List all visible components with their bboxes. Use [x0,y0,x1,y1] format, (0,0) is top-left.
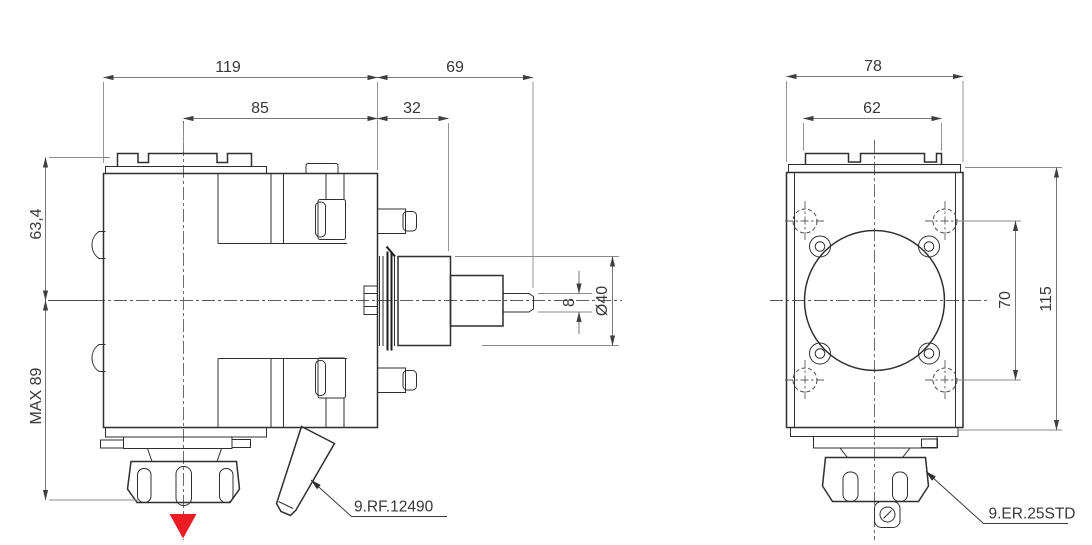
drawing-svg: 119 69 85 32 63,4 MAX 89 8 Ø40 9.RF.1249… [0,0,1092,545]
dim-text-max-89: MAX 89 [28,367,45,424]
front-body [92,154,417,428]
bolt-washer [810,343,831,364]
dim-text-70: 70 [997,291,1014,309]
coolant-pipe-tip-line [279,502,294,509]
side-nut-slot-left [843,472,858,502]
front-output-spindle [364,247,534,351]
spindle-cylinder-large [398,257,451,346]
dim-text-d40: Ø40 [594,286,611,316]
technical-drawing-canvas: 119 69 85 32 63,4 MAX 89 8 Ø40 9.RF.1249… [0,0,1092,545]
side-leader-label: 9.ER.25STD [989,506,1076,523]
front-top-cap [306,164,338,174]
front-pin-lower [378,368,406,393]
bolt-washer [919,236,940,257]
side-nut-slot-right [893,472,908,502]
bolt-hole [924,349,934,359]
front-bottom-flange-tab [232,440,251,448]
dim-text-115: 115 [1038,286,1055,312]
side-top-plate [806,154,942,165]
front-collet-taper [148,449,222,462]
side-bottom-flange [814,437,938,449]
side-set-screw-slot [884,511,892,519]
bolt-hole [815,242,825,252]
dim-text-62: 62 [863,100,881,117]
dim-text-78: 78 [864,58,882,75]
front-top-plate [118,154,252,167]
dim-text-119: 119 [215,59,241,76]
dim-text-8: 8 [561,298,578,307]
tool-direction-arrow-icon [170,514,197,539]
bolt-hole [815,349,825,359]
dim-text-85: 85 [251,100,269,117]
side-dimensions: 78 62 70 115 [787,58,1063,430]
coolant-pipe [277,427,335,516]
bolt-hole [924,242,934,252]
front-leader: 9.RF.12490 [311,480,447,517]
side-bottom-flange-tab [922,439,938,448]
dim-text-63-4: 63,4 [28,208,45,239]
front-nut-slot-right [220,469,234,503]
front-pin-upper [378,209,406,234]
spindle-disc-stack-dark [388,252,392,351]
front-extension-lines-top [104,82,534,288]
front-dimensions: 119 69 85 32 63,4 MAX 89 8 Ø40 [28,59,619,500]
coolant-pipe-body [277,427,335,516]
spindle-hex-flats [364,294,378,307]
front-view: 119 69 85 32 63,4 MAX 89 8 Ø40 9.RF.1249… [28,59,622,540]
dim-text-32: 32 [403,100,421,117]
side-collet-nut [823,458,929,502]
front-top-strip [106,167,267,174]
bolt-washer [919,343,940,364]
side-body [785,154,963,428]
front-bottom-strip [106,428,267,438]
front-boss-upper-bar [316,202,326,237]
side-inner-walls [795,173,956,428]
front-bottom-left-block [101,440,124,448]
spindle-shaft-tip [503,294,534,313]
front-boss-upper [318,200,346,240]
side-view: 78 62 70 115 9.ER.25STD [770,58,1076,540]
side-collet-taper [840,448,910,458]
front-boss-lower-bar [316,361,326,396]
side-leader: 9.ER.25STD [926,472,1076,524]
front-boss-lower [318,358,346,398]
front-interior-lines [218,174,347,428]
front-nut-slot-left [138,469,152,503]
front-leader-label: 9.RF.12490 [354,499,434,516]
bolt-washer [810,236,831,257]
dim-text-69: 69 [446,59,464,76]
front-bottom-flange [124,437,233,449]
spindle-disc-stack [380,256,399,346]
